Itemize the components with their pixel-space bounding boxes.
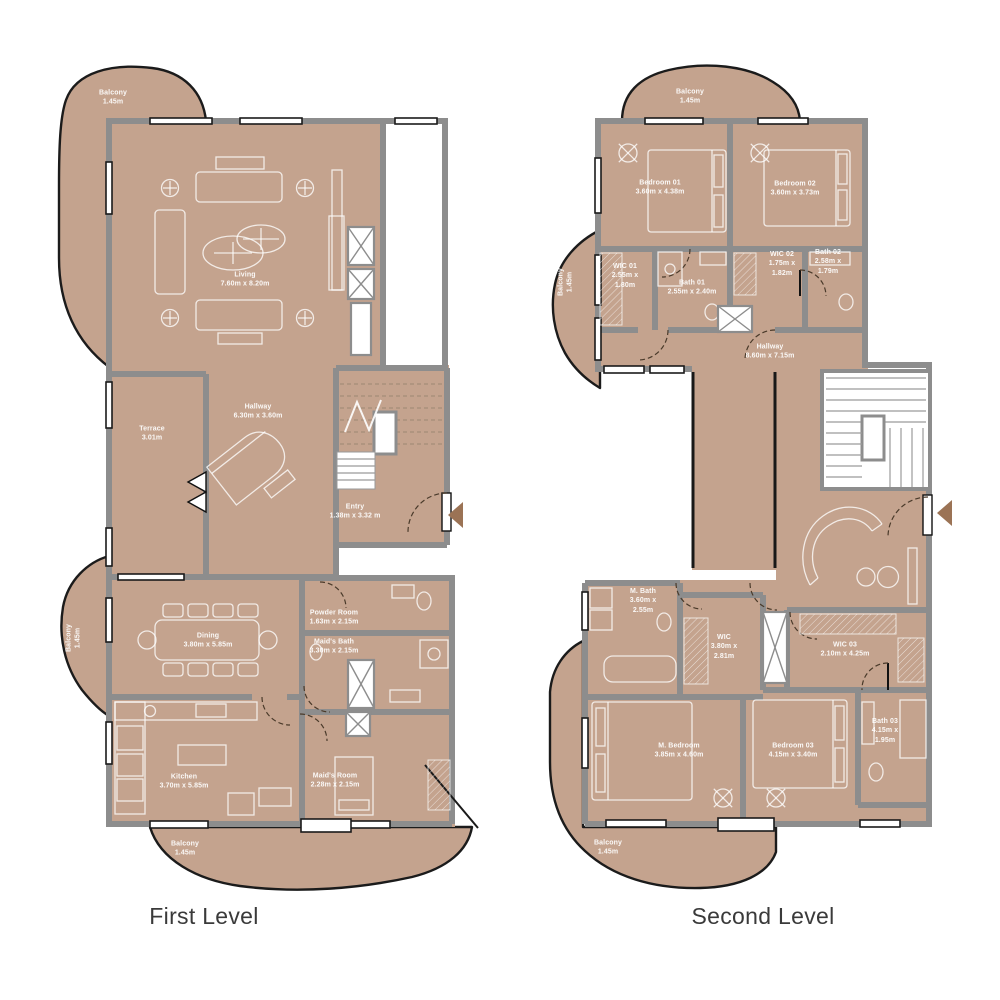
room-label-balcony-bottom: Balcony1.45m	[160, 840, 210, 859]
room-label-dining: Dining3.80m x 5.85m	[163, 632, 253, 651]
room-label-m-bedroom: M. Bedroom3.85m x 4.60m	[634, 742, 724, 761]
room-label-m-bath: M. Bath3.60m x 2.55m	[624, 587, 662, 615]
room-label-balcony-left: Balcony1.45m	[65, 618, 84, 658]
room-label-balcony-bottom-2: Balcony1.45m	[583, 839, 633, 858]
room-label-wic: WIC3.80m x 2.81m	[706, 633, 742, 661]
room-label-maids-bath: Maid's Bath3.30m x 2.15m	[294, 638, 374, 657]
room-label-entry: Entry1.38m x 3.32 m	[310, 503, 400, 522]
room-label-bath-01: Bath 012.55m x 2.40m	[652, 279, 732, 298]
second-entry-door	[923, 495, 932, 535]
room-label-balcony-top: Balcony1.45m	[93, 89, 133, 108]
room-label-wic-03: WIC 032.10m x 4.25m	[800, 641, 890, 660]
room-label-bedroom-03: Bedroom 034.15m x 3.40m	[748, 742, 838, 761]
floor-plan-page: Balcony1.45m Living7.60m x 8.20m Terrace…	[0, 0, 1000, 1000]
room-label-hallway-2: Hallway8.60m x 7.15m	[725, 343, 815, 362]
room-label-living: Living7.60m x 8.20m	[200, 271, 290, 290]
second-level-stairs	[822, 371, 930, 489]
room-label-terrace: Terrace3.01m	[122, 425, 182, 444]
room-label-balcony-top-2: Balcony1.45m	[668, 88, 712, 107]
room-label-kitchen: Kitchen3.70m x 5.85m	[139, 773, 229, 792]
second-level-title: Second Level	[692, 903, 835, 930]
entry-door	[442, 493, 451, 531]
room-label-bath-03: Bath 034.15m x 1.95m	[866, 717, 904, 745]
first-level-floor	[109, 118, 455, 827]
room-label-bedroom-01: Bedroom 013.60m x 4.38m	[615, 179, 705, 198]
room-label-balcony-left-2: Balcony1.45m	[557, 262, 576, 302]
room-label-maids-room: Maid's Room2.28m x 2.15m	[295, 772, 375, 791]
room-label-wic-02: WIC 021.75m x 1.82m	[764, 250, 800, 278]
floor-plans-drawing	[0, 0, 1000, 1000]
entry-arrow-icon	[937, 500, 952, 526]
first-level-plan	[59, 67, 478, 890]
room-label-bedroom-02: Bedroom 023.60m x 3.73m	[750, 180, 840, 199]
room-label-hallway: Hallway6.30m x 3.60m	[213, 403, 303, 422]
first-level-title: First Level	[149, 903, 258, 930]
room-label-bath-02: Bath 022.58m x 1.79m	[810, 248, 846, 276]
room-label-wic-01: WIC 012.55m x 1.80m	[607, 262, 643, 290]
room-label-powder-room: Powder Room1.63m x 2.15m	[299, 609, 369, 628]
